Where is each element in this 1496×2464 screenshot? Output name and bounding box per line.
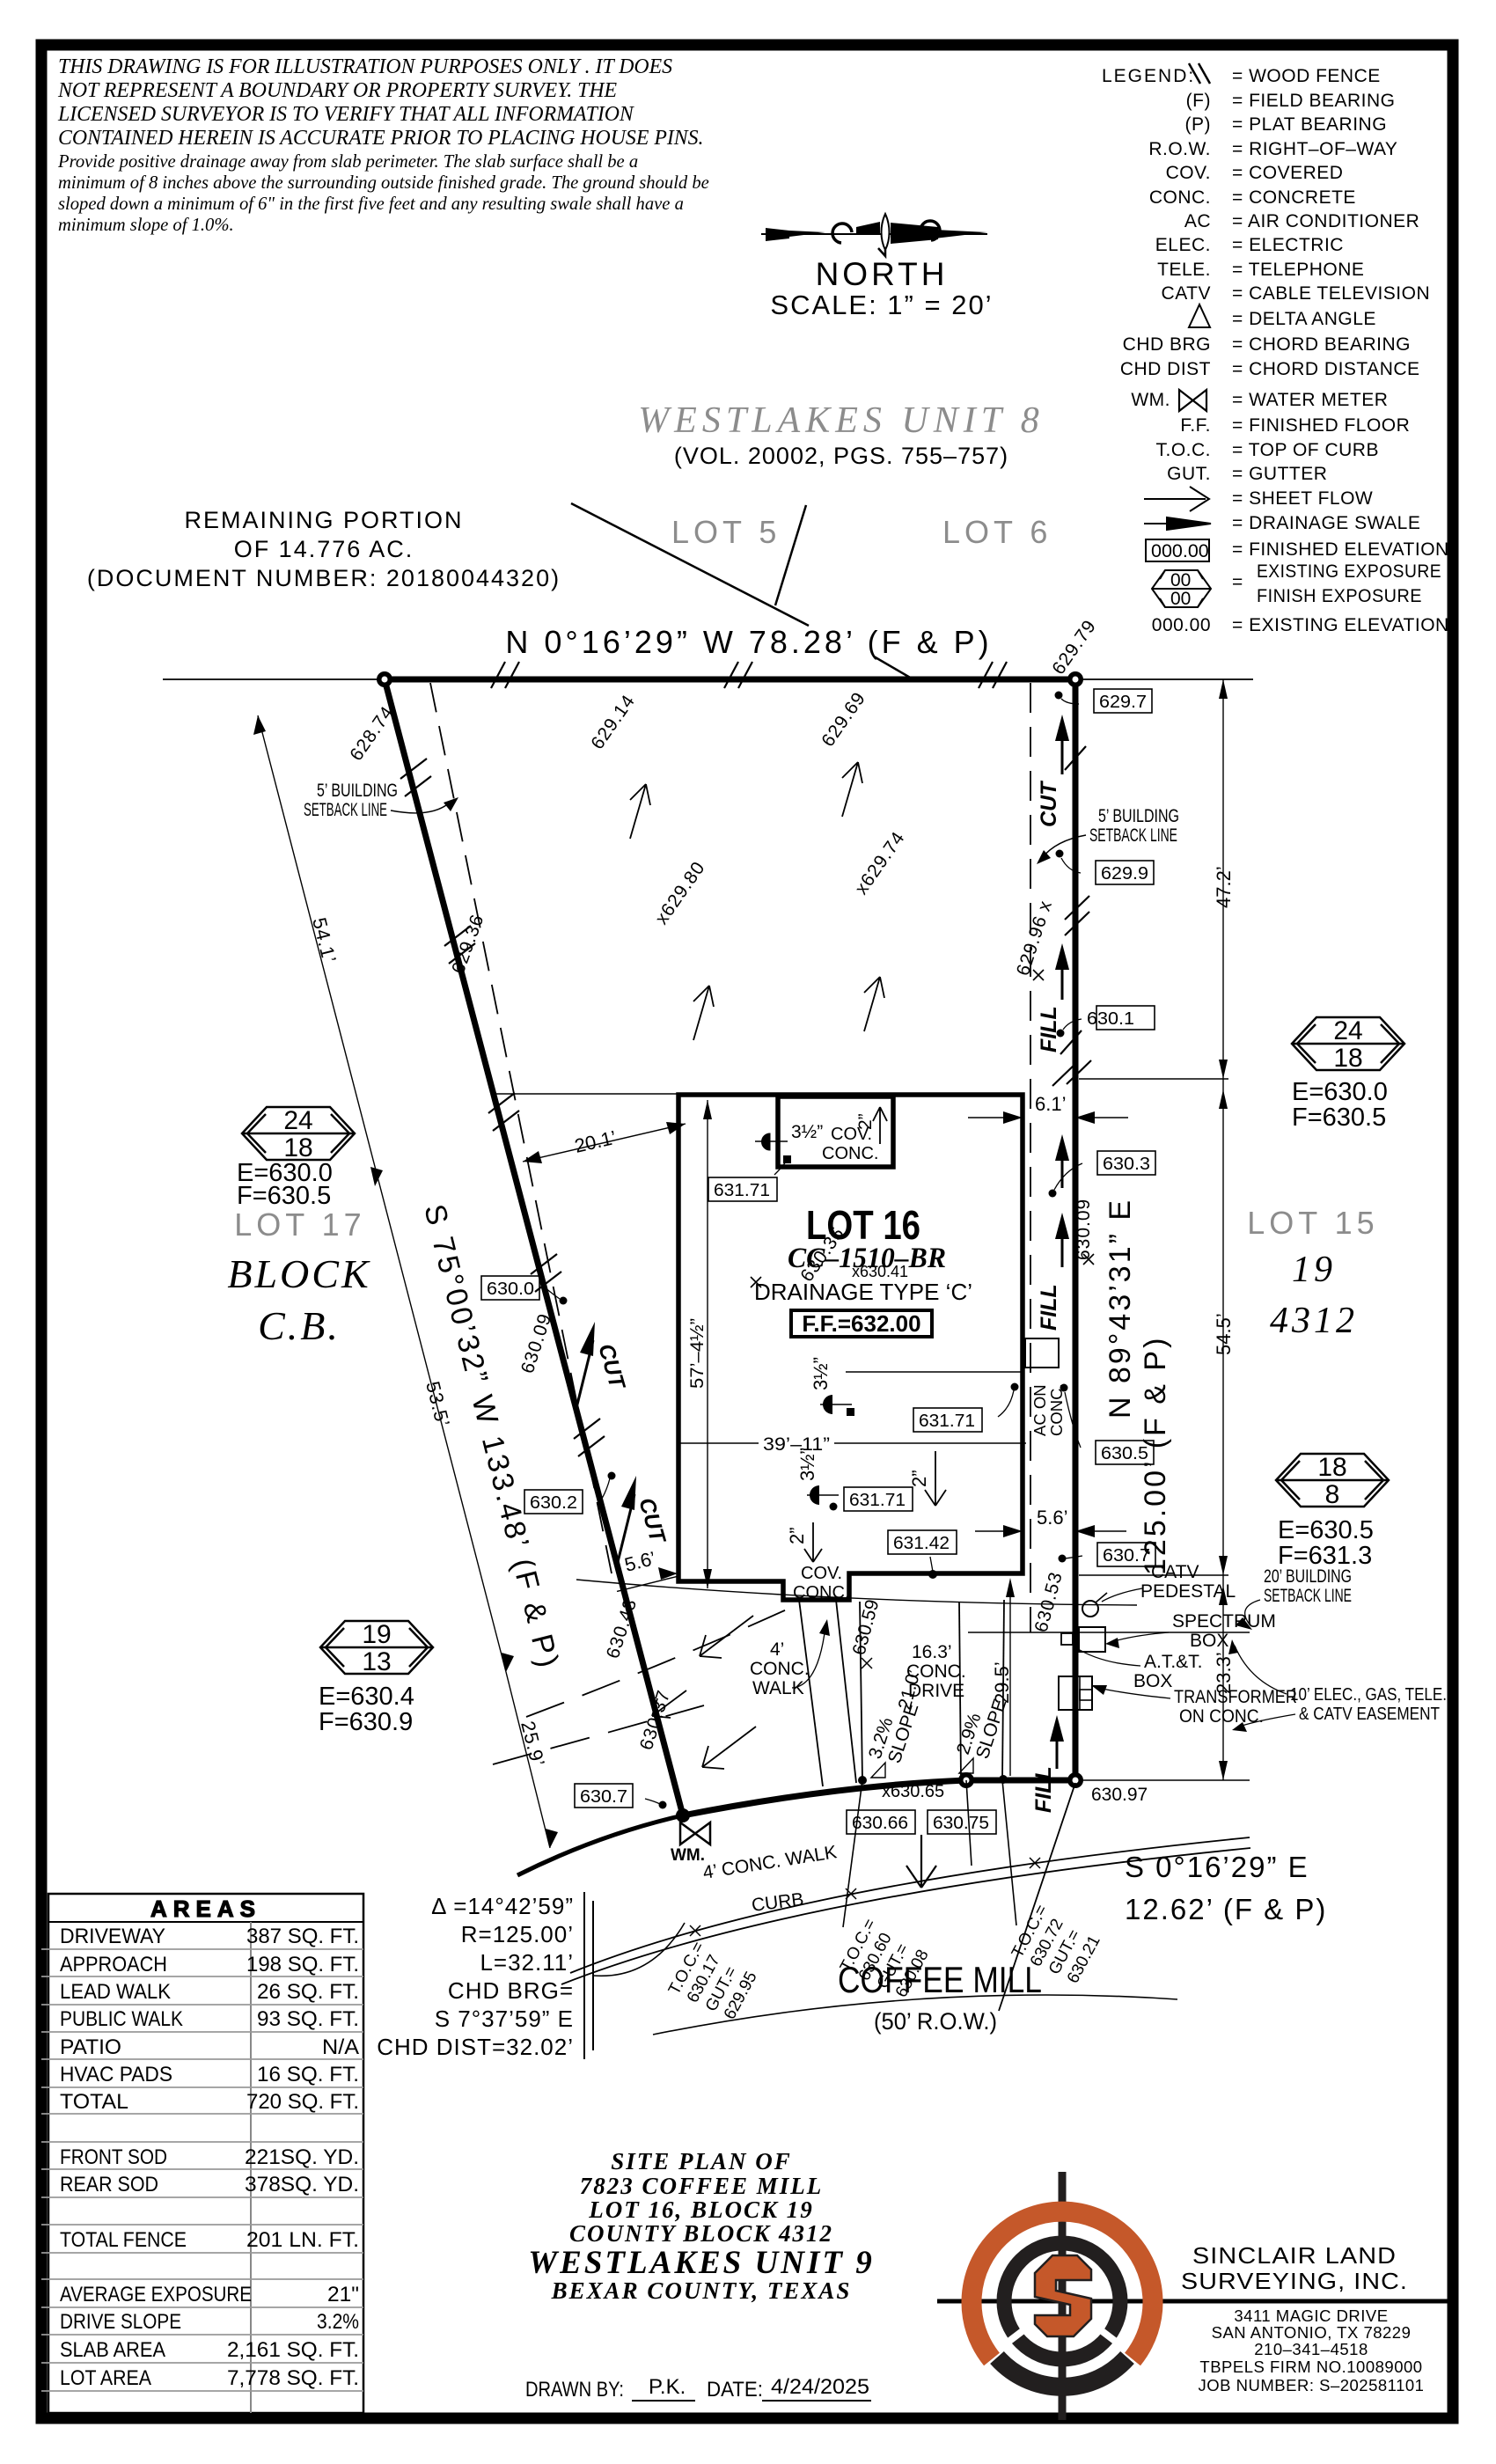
- svg-text:CATV: CATV: [1151, 1562, 1199, 1582]
- svg-text:F=630.5: F=630.5: [1292, 1104, 1386, 1132]
- svg-text:SPECTRUM: SPECTRUM: [1172, 1611, 1276, 1632]
- svg-text:3½”: 3½”: [810, 1357, 832, 1390]
- svg-text:Δ =14°42’59”: Δ =14°42’59”: [431, 1893, 574, 1919]
- svg-text:(F): (F): [1186, 91, 1211, 111]
- svg-text:TBPELS FIRM NO.10089000: TBPELS FIRM NO.10089000: [1199, 2358, 1422, 2376]
- svg-text:E=630.0: E=630.0: [1292, 1078, 1388, 1106]
- svg-text:=: =: [1232, 572, 1243, 592]
- svg-text:631.71: 631.71: [849, 1491, 906, 1510]
- svg-text:2”: 2”: [786, 1527, 808, 1544]
- svg-text:WESTLAKES UNIT 9: WESTLAKES UNIT 9: [528, 2245, 874, 2281]
- svg-text:19: 19: [362, 1620, 391, 1649]
- svg-text:COUNTY BLOCK 4312: COUNTY BLOCK 4312: [569, 2220, 833, 2247]
- svg-text:SCALE: 1” = 20’: SCALE: 1” = 20’: [770, 290, 993, 320]
- svg-text:= WOOD FENCE: = WOOD FENCE: [1232, 66, 1381, 86]
- svg-text:TELE.: TELE.: [1157, 260, 1211, 280]
- svg-text:JOB NUMBER: S–202581101: JOB NUMBER: S–202581101: [1199, 2376, 1425, 2394]
- svg-text:630.09: 630.09: [1074, 1199, 1094, 1260]
- svg-text:LOT 17: LOT 17: [234, 1206, 365, 1243]
- svg-text:NORTH: NORTH: [816, 256, 949, 292]
- svg-text:7823 COFFEE MILL: 7823 COFFEE MILL: [580, 2173, 824, 2199]
- svg-text:LICENSED SURVEYOR IS TO VERIFY: LICENSED SURVEYOR IS TO VERIFY THAT ALL …: [57, 103, 634, 126]
- svg-text:= FINISHED FLOOR: = FINISHED FLOOR: [1232, 415, 1410, 436]
- svg-text:T.O.C.: T.O.C.: [1155, 440, 1211, 460]
- svg-text:& CATV EASEMENT: & CATV EASEMENT: [1299, 1705, 1440, 1724]
- svg-text:630.3: 630.3: [1103, 1155, 1150, 1174]
- svg-text:S 0°16’29” E: S 0°16’29” E: [1125, 1851, 1309, 1883]
- svg-text:631.71: 631.71: [714, 1181, 770, 1200]
- svg-text:630.0: 630.0: [487, 1280, 534, 1299]
- svg-text:00: 00: [1170, 570, 1191, 590]
- svg-text:= SHEET FLOW: = SHEET FLOW: [1232, 488, 1373, 509]
- svg-text:F=630.5: F=630.5: [237, 1182, 331, 1210]
- svg-text:630.66: 630.66: [852, 1814, 908, 1833]
- svg-text:SAN ANTONIO, TX 78229: SAN ANTONIO, TX 78229: [1212, 2323, 1412, 2342]
- svg-text:WESTLAKES UNIT 8: WESTLAKES UNIT 8: [638, 400, 1045, 441]
- svg-text:630.7: 630.7: [580, 1787, 627, 1807]
- svg-text:6.1’: 6.1’: [1035, 1093, 1066, 1115]
- svg-text:N/A: N/A: [322, 2035, 359, 2059]
- svg-text:DRAWN BY:: DRAWN BY:: [525, 2378, 624, 2402]
- svg-text:21": 21": [327, 2283, 359, 2306]
- svg-text:F.F.: F.F.: [1180, 415, 1211, 436]
- svg-text:CHD BRG: CHD BRG: [1123, 334, 1211, 355]
- svg-text:2,161 SQ. FT.: 2,161 SQ. FT.: [227, 2338, 359, 2362]
- svg-text:630.97: 630.97: [1091, 1785, 1148, 1805]
- svg-text:= CABLE TELEVISION: = CABLE TELEVISION: [1232, 283, 1430, 304]
- svg-text:18: 18: [1333, 1044, 1362, 1073]
- svg-text:93 SQ. FT.: 93 SQ. FT.: [257, 2007, 359, 2031]
- svg-text:18: 18: [1317, 1453, 1346, 1482]
- svg-text:3½”: 3½”: [791, 1122, 823, 1142]
- svg-text:BLOCK: BLOCK: [227, 1251, 370, 1296]
- svg-text:5’ BUILDING: 5’ BUILDING: [317, 781, 398, 801]
- svg-text:COFFEE MILL: COFFEE MILL: [838, 1959, 1042, 2000]
- svg-text:HVAC PADS: HVAC PADS: [60, 2063, 172, 2086]
- svg-text:630.7: 630.7: [1103, 1546, 1150, 1566]
- svg-text:221SQ. YD.: 221SQ. YD.: [245, 2145, 359, 2169]
- svg-text:N 0°16’29” W 78.28’ (F & P: N 0°16’29” W 78.28’ (F & P): [505, 624, 992, 660]
- svg-text:630.2: 630.2: [530, 1493, 577, 1513]
- svg-text:E=630.4: E=630.4: [319, 1683, 414, 1711]
- svg-text:26 SQ. FT.: 26 SQ. FT.: [257, 1980, 359, 2004]
- svg-text:10’ ELEC., GAS, TELE.: 10’ ELEC., GAS, TELE.: [1290, 1685, 1447, 1705]
- svg-text:LOT 15: LOT 15: [1247, 1205, 1378, 1241]
- svg-text:PATIO: PATIO: [60, 2035, 121, 2059]
- svg-text:GUT.: GUT.: [1167, 464, 1211, 484]
- svg-text:F.F.=632.00: F.F.=632.00: [802, 1310, 920, 1337]
- svg-text:TOTAL FENCE: TOTAL FENCE: [60, 2228, 187, 2252]
- svg-text:SETBACK LINE: SETBACK LINE: [1089, 825, 1177, 846]
- svg-text:29.5’: 29.5’: [991, 1661, 1013, 1704]
- svg-text:CUT: CUT: [1037, 780, 1061, 827]
- svg-text:00: 00: [1170, 589, 1191, 609]
- svg-text:= TELEPHONE: = TELEPHONE: [1232, 260, 1364, 280]
- svg-text:CONC.: CONC.: [1149, 187, 1211, 208]
- svg-text:3½”: 3½”: [796, 1448, 818, 1481]
- svg-text:minimum slope of 1.0%.: minimum slope of 1.0%.: [58, 216, 234, 235]
- svg-text:E=630.5: E=630.5: [1278, 1516, 1374, 1544]
- svg-text:ELEC.: ELEC.: [1155, 235, 1211, 255]
- svg-text:000.00: 000.00: [1151, 540, 1209, 561]
- svg-text:FINISH EXPOSURE: FINISH EXPOSURE: [1257, 586, 1422, 606]
- svg-text:DATE:: DATE:: [707, 2378, 763, 2402]
- svg-text:minimum of 8 inches above the: minimum of 8 inches above the surroundin…: [58, 173, 709, 193]
- svg-text:Provide positive drainage away: Provide positive drainage away from slab…: [57, 152, 638, 172]
- svg-text:= GUTTER: = GUTTER: [1232, 464, 1327, 484]
- svg-text:631.42: 631.42: [893, 1534, 950, 1553]
- svg-text:LOT AREA: LOT AREA: [60, 2366, 151, 2390]
- svg-text:SLAB AREA: SLAB AREA: [60, 2338, 165, 2362]
- svg-text:= WATER METER: = WATER METER: [1232, 390, 1388, 410]
- svg-text:= CONCRETE: = CONCRETE: [1232, 187, 1356, 208]
- svg-text:DRIVEWAY: DRIVEWAY: [60, 1925, 165, 1948]
- svg-text:AC: AC: [1184, 211, 1211, 231]
- svg-text:BOX: BOX: [1133, 1671, 1172, 1691]
- svg-text:COV.: COV.: [801, 1564, 842, 1583]
- svg-text:5’ BUILDING: 5’ BUILDING: [1098, 806, 1179, 826]
- svg-text:= DELTA ANGLE: = DELTA ANGLE: [1232, 309, 1376, 329]
- svg-text:PEDESTAL: PEDESTAL: [1140, 1581, 1236, 1602]
- svg-text:4312: 4312: [1270, 1301, 1358, 1341]
- svg-text:LOT 16, BLOCK 19: LOT 16, BLOCK 19: [588, 2196, 814, 2223]
- svg-text:3.2%: 3.2%: [317, 2310, 359, 2334]
- svg-text:SITE PLAN OF: SITE PLAN OF: [611, 2148, 792, 2174]
- svg-text:2”: 2”: [855, 1113, 876, 1130]
- svg-text:(50’ R.O.W.): (50’ R.O.W.): [874, 2008, 997, 2035]
- svg-text:REMAINING PORTION: REMAINING PORTION: [184, 507, 463, 533]
- svg-text:x630.65: x630.65: [882, 1782, 944, 1801]
- svg-text:630.75: 630.75: [933, 1814, 989, 1833]
- svg-text:20’ BUILDING: 20’ BUILDING: [1264, 1566, 1352, 1587]
- svg-text:54.5’: 54.5’: [1213, 1313, 1235, 1355]
- svg-text:(DOCUMENT NUMBER: 2018004432: (DOCUMENT NUMBER: 20180044320): [87, 565, 561, 591]
- svg-text:= EXISTING ELEVATION: = EXISTING ELEVATION: [1232, 615, 1449, 635]
- svg-text:13: 13: [362, 1647, 391, 1676]
- svg-text:EXISTING EXPOSURE: EXISTING EXPOSURE: [1257, 561, 1441, 582]
- svg-text:3411 MAGIC DRIVE: 3411 MAGIC DRIVE: [1234, 2306, 1388, 2325]
- svg-text:LOT 5: LOT 5: [671, 514, 781, 550]
- svg-text:198 SQ. FT.: 198 SQ. FT.: [246, 1953, 359, 1976]
- svg-text:378SQ. YD.: 378SQ. YD.: [245, 2173, 359, 2196]
- svg-text:(P): (P): [1185, 114, 1212, 135]
- svg-text:R=125.00’: R=125.00’: [461, 1921, 574, 1947]
- svg-text:19: 19: [1292, 1250, 1336, 1290]
- svg-text:= FIELD BEARING: = FIELD BEARING: [1232, 91, 1395, 111]
- svg-text:TRANSFORMER: TRANSFORMER: [1174, 1687, 1297, 1707]
- svg-text:CONC.: CONC.: [793, 1583, 849, 1602]
- svg-text:x630.41: x630.41: [852, 1263, 908, 1280]
- svg-text:COV.: COV.: [1166, 163, 1211, 183]
- svg-text:TOTAL: TOTAL: [60, 2090, 128, 2114]
- svg-text:OF 14.776 AC.: OF 14.776 AC.: [234, 536, 414, 562]
- svg-text:CONTAINED HEREIN IS ACCURATE P: CONTAINED HEREIN IS ACCURATE PRIOR TO PL…: [58, 127, 704, 150]
- svg-text:= CHORD DISTANCE: = CHORD DISTANCE: [1232, 359, 1420, 379]
- svg-text:SETBACK LINE: SETBACK LINE: [304, 800, 387, 820]
- svg-text:16 SQ. FT.: 16 SQ. FT.: [257, 2063, 359, 2086]
- svg-text:210–341–4518: 210–341–4518: [1254, 2340, 1368, 2358]
- svg-text:AC ON: AC ON: [1030, 1384, 1049, 1436]
- svg-text:16.3’: 16.3’: [912, 1642, 952, 1662]
- svg-text:N 89°43’31” E: N 89°43’31” E: [1104, 1198, 1137, 1419]
- svg-text:CONC.: CONC.: [822, 1144, 878, 1163]
- svg-text:WM.: WM.: [1131, 390, 1170, 410]
- svg-text:= RIGHT–OF–WAY: = RIGHT–OF–WAY: [1232, 139, 1397, 159]
- svg-text:C.B.: C.B.: [258, 1303, 341, 1348]
- svg-text:P.K.: P.K.: [649, 2375, 686, 2399]
- svg-text:F=630.9: F=630.9: [319, 1708, 413, 1736]
- svg-text:FILL: FILL: [1037, 1284, 1061, 1331]
- svg-text:CHD BRG=: CHD BRG=: [448, 1977, 574, 2004]
- svg-text:L=32.11’: L=32.11’: [480, 1949, 574, 1976]
- svg-text:BOX: BOX: [1190, 1631, 1228, 1651]
- svg-text:630.5: 630.5: [1101, 1444, 1148, 1463]
- svg-text:AVERAGE EXPOSURE: AVERAGE EXPOSURE: [60, 2283, 252, 2306]
- svg-text:LOT 16: LOT 16: [806, 1202, 920, 1248]
- svg-text:= ELECTRIC: = ELECTRIC: [1232, 235, 1344, 255]
- svg-text:FILL: FILL: [1037, 1006, 1061, 1052]
- svg-text:LOT 6: LOT 6: [942, 514, 1052, 550]
- svg-text:5.6’: 5.6’: [1037, 1507, 1067, 1529]
- svg-text:CATV: CATV: [1162, 283, 1211, 304]
- svg-text:NOT REPRESENT A BOUNDARY OR PR: NOT REPRESENT A BOUNDARY OR PROPERTY SUR…: [57, 79, 618, 102]
- svg-text:201 LN. FT.: 201 LN. FT.: [246, 2228, 359, 2252]
- svg-text:SURVEYING, INC.: SURVEYING, INC.: [1181, 2268, 1408, 2294]
- svg-text:ON CONC.: ON CONC.: [1179, 1706, 1264, 1727]
- svg-text:= COVERED: = COVERED: [1232, 163, 1343, 183]
- svg-text:= CHORD BEARING: = CHORD BEARING: [1232, 334, 1411, 355]
- svg-text:= AIR CONDITIONER: = AIR CONDITIONER: [1232, 211, 1419, 231]
- svg-text:DRAINAGE TYPE ‘C’: DRAINAGE TYPE ‘C’: [754, 1279, 972, 1305]
- svg-text:57’–4½”: 57’–4½”: [687, 1318, 708, 1389]
- svg-text:2”: 2”: [908, 1470, 930, 1487]
- svg-text:= FINISHED ELEVATION: = FINISHED ELEVATION: [1232, 539, 1449, 560]
- svg-text:FILL: FILL: [1031, 1766, 1056, 1813]
- svg-text:LEAD WALK: LEAD WALK: [60, 1980, 171, 2004]
- svg-text:SINCLAIR LAND: SINCLAIR LAND: [1192, 2242, 1397, 2269]
- svg-text:24: 24: [283, 1106, 312, 1135]
- svg-text:FRONT SOD: FRONT SOD: [60, 2145, 167, 2169]
- svg-text:7,778 SQ. FT.: 7,778 SQ. FT.: [227, 2366, 359, 2390]
- svg-text:WM.: WM.: [671, 1846, 705, 1865]
- svg-text:= PLAT BEARING: = PLAT BEARING: [1232, 114, 1387, 135]
- svg-text:387 SQ. FT.: 387 SQ. FT.: [246, 1925, 359, 1948]
- svg-text:SETBACK LINE: SETBACK LINE: [1264, 1586, 1352, 1606]
- svg-text:4/24/2025: 4/24/2025: [771, 2375, 869, 2399]
- svg-text:sloped down a minimum of 6" in: sloped down a minimum of 6" in the first…: [58, 194, 684, 214]
- svg-text:630.1: 630.1: [1087, 1009, 1134, 1029]
- svg-text:631.71: 631.71: [919, 1412, 975, 1431]
- svg-text:REAR SOD: REAR SOD: [60, 2173, 158, 2196]
- svg-text:APPROACH: APPROACH: [60, 1953, 167, 1976]
- svg-text:CONC.: CONC.: [750, 1659, 810, 1679]
- svg-text:8: 8: [1325, 1480, 1340, 1509]
- svg-text:(VOL. 20002, PGS. 755–757): (VOL. 20002, PGS. 755–757): [674, 443, 1008, 469]
- svg-text:PUBLIC WALK: PUBLIC WALK: [60, 2007, 183, 2031]
- svg-text:= TOP OF CURB: = TOP OF CURB: [1232, 440, 1379, 460]
- svg-text:4’: 4’: [770, 1639, 784, 1660]
- svg-text:24: 24: [1333, 1016, 1362, 1045]
- svg-text:A.T.&T.: A.T.&T.: [1144, 1652, 1203, 1672]
- svg-text:LEGEND:: LEGEND:: [1102, 66, 1195, 86]
- svg-text:720 SQ. FT.: 720 SQ. FT.: [246, 2090, 359, 2114]
- svg-text:R.O.W.: R.O.W.: [1148, 139, 1211, 159]
- svg-text:000.00: 000.00: [1152, 615, 1211, 635]
- svg-text:DRIVE SLOPE: DRIVE SLOPE: [60, 2310, 181, 2334]
- svg-text:S 7°37’59” E: S 7°37’59” E: [435, 2006, 574, 2032]
- svg-text:47.2’: 47.2’: [1213, 866, 1235, 908]
- svg-text:WALK: WALK: [752, 1678, 804, 1698]
- svg-text:629.7: 629.7: [1099, 693, 1147, 712]
- svg-text:THIS DRAWING IS FOR ILLUSTRATI: THIS DRAWING IS FOR ILLUSTRATION PURPOSE…: [58, 55, 672, 78]
- svg-text:CHD DIST=32.02’: CHD DIST=32.02’: [377, 2034, 574, 2060]
- svg-text:12.62’ (F & P): 12.62’ (F & P): [1125, 1893, 1327, 1925]
- svg-text:= DRAINAGE SWALE: = DRAINAGE SWALE: [1232, 513, 1420, 533]
- svg-text:629.9: 629.9: [1101, 864, 1148, 884]
- svg-text:CHD DIST: CHD DIST: [1120, 359, 1211, 379]
- svg-text:AREAS: AREAS: [150, 1896, 261, 1922]
- svg-text:BEXAR COUNTY, TEXAS: BEXAR COUNTY, TEXAS: [551, 2277, 852, 2304]
